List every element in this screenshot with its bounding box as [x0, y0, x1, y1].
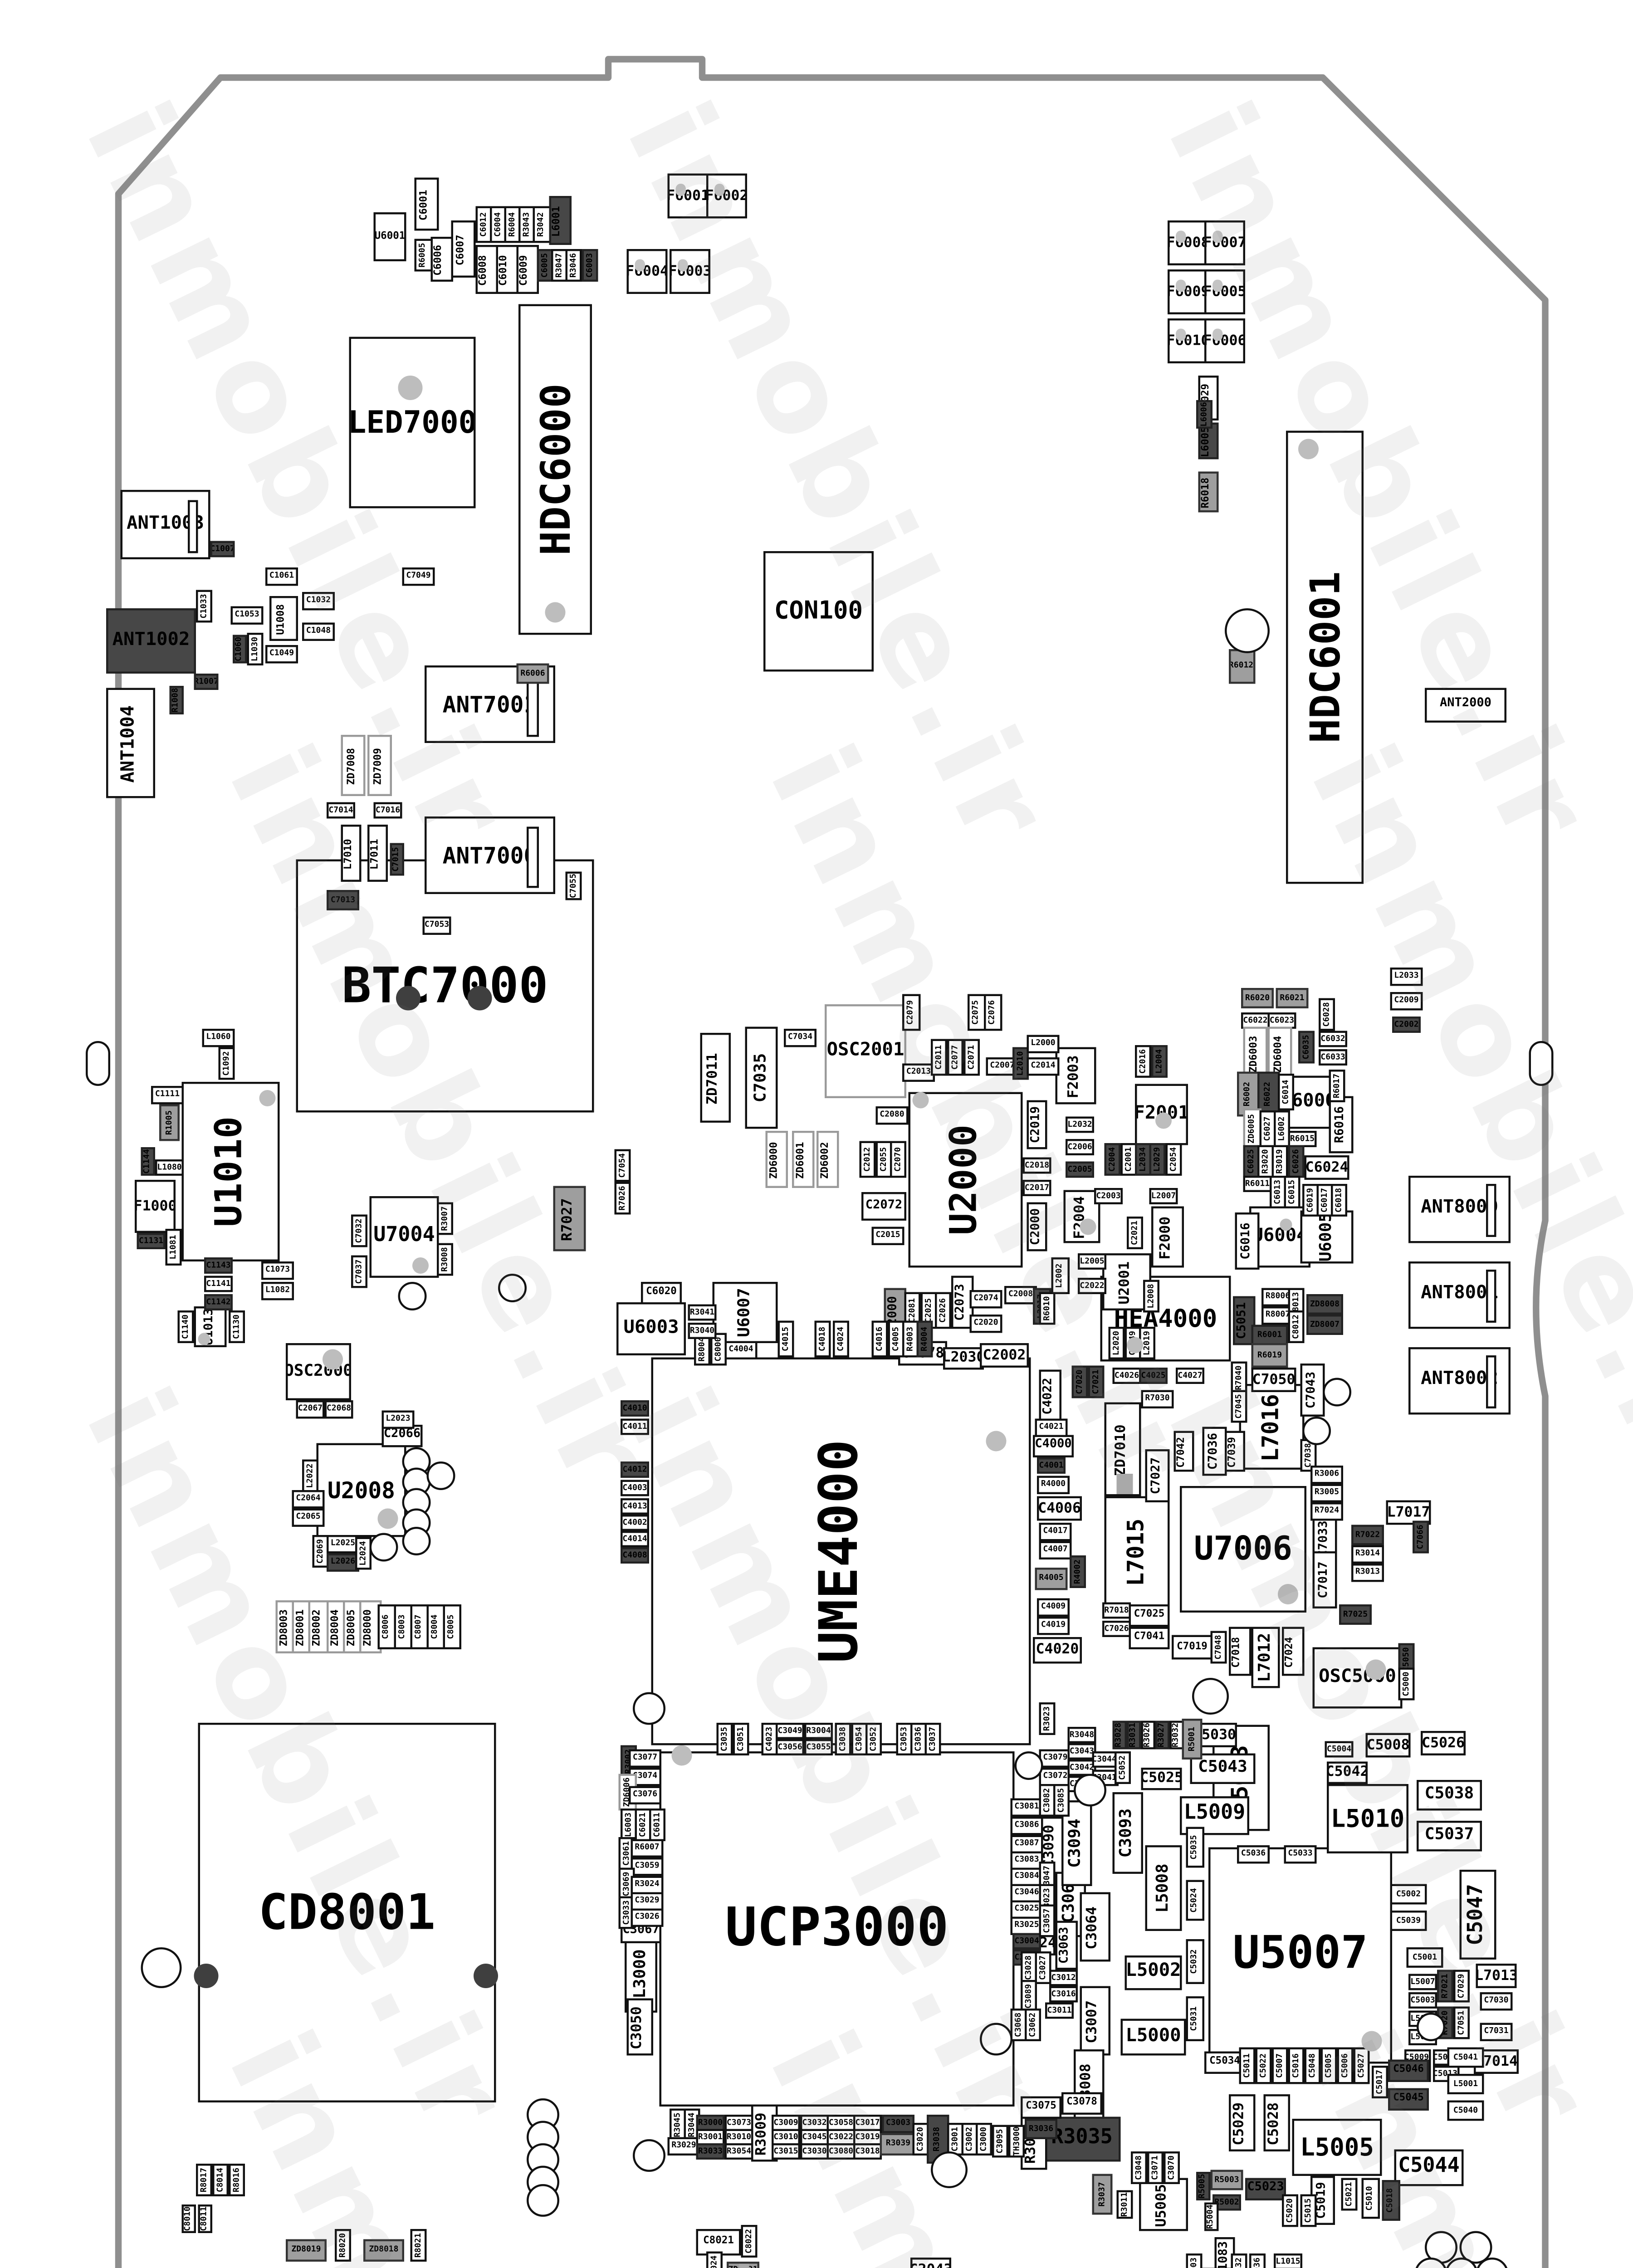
component-label: C2070 [894, 1147, 902, 1172]
component-label: C3016 [1051, 1990, 1076, 1999]
component-C1111: C1111 [151, 1085, 184, 1104]
solder-pad [1117, 1474, 1133, 1494]
component-label: UME4000 [814, 1439, 867, 1663]
component-C2068: C2068 [325, 1399, 353, 1418]
component-U6005: U6005 [1301, 1211, 1354, 1264]
component-label: C7050 [1252, 1373, 1296, 1387]
component-label: C2043 [910, 2263, 951, 2268]
component-C6001: C6001 [415, 178, 439, 231]
component-label: C3015 [773, 2147, 798, 2156]
component-C5038: C5038 [1417, 1779, 1482, 1810]
component-label: C5027 [1358, 2053, 1366, 2078]
component-label: R3024 [635, 1880, 659, 1888]
component-label: R7018 [1104, 1607, 1129, 1615]
component-label: C2071 [968, 1045, 976, 1070]
component-label: C1060 [235, 637, 243, 661]
component-C2012: C2012 [860, 1141, 876, 1178]
component-R3025: R3025 [1011, 1916, 1043, 1934]
component-label: C7017 [1319, 1561, 1331, 1598]
component-C3068: C3068 [1011, 2009, 1027, 2041]
component-label: R3043 [523, 212, 531, 237]
component-C4001: C4001 [1037, 1457, 1066, 1474]
component-label: C3012 [1051, 1974, 1076, 1982]
component-label: R6005 [419, 243, 427, 267]
component-C3007: C3007 [1079, 1986, 1110, 2056]
component-L2025: L2025 [327, 1534, 359, 1553]
component-U1010: U1010 [182, 1082, 280, 1261]
component-C5032: C5032 [1185, 1939, 1203, 1984]
component-R7040: R7040 [1231, 1362, 1247, 1394]
component-L2032: L2032 [1066, 1117, 1094, 1133]
component-C2016: C2016 [1135, 1045, 1151, 1078]
component-R3046: R3046 [566, 249, 582, 282]
component-label: R3047 [555, 253, 563, 278]
mounting-hole [527, 2184, 559, 2217]
component-label: C7054 [619, 1153, 627, 1178]
component-label: L1080 [157, 1163, 181, 1172]
component-L2026: L2026 [327, 1552, 359, 1571]
component-label: ZD6002 [821, 1141, 832, 1178]
component-label: C7039 [1230, 1436, 1240, 1467]
component-label: R6006 [520, 670, 545, 678]
component-C7048: C7048 [1211, 1631, 1227, 1664]
component-label: R1008 [171, 688, 180, 712]
component-C5004: C5004 [1325, 1741, 1354, 1758]
component-label: ZD8004 [332, 1608, 342, 1645]
component-C1033: C1033 [196, 590, 212, 623]
component-R3028: R3028 [1111, 1721, 1126, 1750]
component-label: F6005 [1204, 285, 1245, 299]
component-label: C7030 [1484, 1996, 1508, 2004]
component-label: C5051 [1237, 1302, 1249, 1339]
component-label: L1015 [1276, 2258, 1300, 2266]
component-label: C5028 [1269, 2102, 1283, 2145]
component-R6001: R6001 [1252, 1325, 1288, 1345]
component-label: C2079 [906, 1000, 914, 1025]
component-R3026: R3026 [1140, 1721, 1154, 1750]
component-R3023: R3023 [1039, 1702, 1056, 1735]
component-C4015: C4015 [778, 1321, 794, 1358]
component-C8011: C8011 [197, 2204, 211, 2233]
component-label: C2016 [1139, 1049, 1147, 1074]
component-label: C5039 [1396, 1917, 1421, 1925]
component-C3018: C3018 [853, 2143, 882, 2160]
component-label: R3000 [698, 2119, 723, 2127]
component-ANT8002: ANT8002 [1408, 1346, 1511, 1414]
component-R6018: R6018 [1198, 472, 1219, 513]
component-F2000: F2000 [1151, 1207, 1184, 1268]
component-label: L1030 [251, 637, 259, 661]
component-label: C3033 [623, 1900, 631, 1925]
component-OSC5000: OSC5000 [1313, 1647, 1403, 1709]
component-label: L2000 [1031, 1039, 1055, 1047]
component-label: C3095 [996, 2129, 1004, 2153]
component-label: R3025 [1014, 1921, 1039, 1929]
component-C1060: C1060 [232, 635, 246, 664]
component-label: C7043 [1306, 1372, 1319, 1408]
mounting-hole [1192, 1678, 1229, 1715]
component-C7045: C7045 [1231, 1390, 1247, 1423]
component-C5052: C5052 [1115, 1751, 1131, 1784]
antenna-slot [189, 500, 198, 553]
component-label: C4011 [622, 1423, 647, 1431]
component-label: C5035 [1190, 1835, 1198, 1859]
component-label: F6001 [668, 189, 709, 203]
component-label: C2000 [1031, 1208, 1043, 1245]
component-label: ZD8007 [1310, 1321, 1340, 1329]
component-label: C5038 [1425, 1786, 1474, 1803]
component-C4004: C4004 [725, 1340, 758, 1359]
component-label: ZD8002 [313, 1608, 324, 1645]
component-R3037: R3037 [1092, 2174, 1113, 2215]
component-C7034: C7034 [784, 1028, 816, 1046]
component-R3042: R3042 [532, 206, 550, 243]
component-label: F6004 [627, 264, 668, 279]
component-C7031: C7031 [1480, 2022, 1513, 2040]
component-label: C2007 [990, 1061, 1014, 1070]
component-C6014: C6014 [1278, 1074, 1294, 1110]
component-C3064: C3064 [1079, 1892, 1110, 1962]
component-label: C6022 [1243, 1017, 1267, 1025]
component-label: TH3000 [1012, 2126, 1021, 2156]
pin1-dot [545, 602, 566, 623]
component-label: R6001 [1257, 1331, 1282, 1339]
component-C7024: C7024 [1281, 1627, 1304, 1676]
component-label: R3054 [727, 2147, 751, 2156]
component-label: U6004 [1252, 1228, 1308, 1246]
component-label: R6002 [1243, 1082, 1252, 1106]
component-C3000: C3000 [976, 2123, 992, 2156]
component-label: L5005 [1300, 2135, 1374, 2160]
component-C3059: C3059 [631, 1857, 664, 1875]
component-label: ZD8008 [1310, 1300, 1340, 1309]
component-label: C6003 [586, 253, 594, 278]
component-C5003: C5003 [1408, 1992, 1437, 2009]
component-R6019: R6019 [1252, 1343, 1288, 1368]
component-label: R3032 [1172, 1723, 1180, 1747]
component-label: C3089 [1025, 1984, 1033, 2009]
component-label: L2023 [386, 1415, 410, 1423]
component-LED7000: LED7000 [349, 337, 476, 508]
component-label: C1003 [1190, 2258, 1198, 2268]
mounting-hole [1015, 1751, 1043, 1780]
component-label: C7031 [1484, 2027, 1508, 2035]
component-label: L5009 [1184, 1804, 1245, 1825]
component-label: C8003 [398, 1614, 406, 1639]
component-label: C3070 [1168, 2156, 1176, 2180]
component-C7037: C7037 [351, 1256, 367, 1288]
component-label: C6035 [1302, 1035, 1310, 1059]
component-label: C6016 [1241, 1222, 1253, 1259]
component-label: C3020 [917, 2127, 925, 2151]
component-C4014: C4014 [621, 1531, 649, 1547]
component-label: C3063 [1060, 1927, 1072, 1964]
component-label: C1007 [210, 545, 235, 553]
component-label: R4002 [1074, 1559, 1082, 1584]
component-C3056: C3056 [776, 1739, 804, 1755]
component-C8006: C8006 [376, 1604, 395, 1649]
component-label: C7035 [753, 1053, 770, 1102]
component-C2018: C2018 [1023, 1158, 1051, 1174]
pin1-dot [1127, 1337, 1143, 1354]
component-ANT7000: ANT7000 [425, 816, 555, 894]
component-label: R3010 [727, 2133, 751, 2141]
component-label: C3025 [1014, 1905, 1039, 1913]
component-label: U1008 [279, 603, 289, 634]
component-C1048: C1048 [302, 621, 335, 640]
component-C6015: C6015 [1284, 1176, 1301, 1208]
component-C2054: C2054 [1166, 1143, 1182, 1176]
component-C3089: C3089 [1021, 1980, 1037, 2013]
component-C2003: C2003 [1094, 1188, 1123, 1204]
component-label: C5020 [1286, 2198, 1294, 2223]
component-ZD7011: ZD7011 [699, 1033, 730, 1123]
component-C2006: C2006 [1066, 1139, 1094, 1155]
component-label: C4000 [1035, 1439, 1071, 1452]
component-label: R3019 [1276, 1149, 1284, 1173]
component-F6003: F6003 [670, 249, 710, 294]
component-label: C3056 [777, 1743, 802, 1751]
component-C7027: C7027 [1145, 1449, 1170, 1502]
component-C3075: C3075 [1021, 2095, 1061, 2118]
component-label: C7025 [1134, 1609, 1165, 1620]
component-label: C2012 [864, 1147, 872, 1172]
component-R5005: R5005 [1195, 2172, 1210, 2200]
component-label: C3003 [886, 2119, 910, 2127]
component-label: ZD7010 [1115, 1423, 1130, 1475]
component-label: C7021 [1092, 1369, 1100, 1394]
component-R6021: R6021 [1276, 988, 1309, 1008]
component-C5020: C5020 [1282, 2195, 1298, 2227]
component-label: C5031 [1190, 2006, 1198, 2031]
component-label: C6004 [494, 212, 502, 237]
component-C8010: C8010 [181, 2204, 195, 2233]
component-label: ANT1004 [122, 704, 140, 782]
component-label: C6012 [480, 212, 488, 237]
component-C3015: C3015 [772, 2143, 800, 2160]
component-CON100: CON100 [763, 550, 874, 671]
component-label: C3078 [1066, 2097, 1097, 2108]
component-label: C1142 [206, 1298, 230, 1306]
component-label: F6010 [1168, 334, 1208, 348]
component-label: L1060 [206, 1033, 230, 1041]
component-label: L2002 [1056, 1263, 1064, 1288]
component-C4021: C4021 [1035, 1417, 1068, 1436]
component-C5023: C5023 [1245, 2177, 1286, 2200]
component-C2026: C2026 [935, 1292, 951, 1329]
component-C4009: C4009 [1037, 1597, 1070, 1616]
component-C2000: C2000 [1027, 1202, 1047, 1251]
component-C2014: C2014 [1027, 1056, 1060, 1075]
mounting-hole [1074, 1774, 1106, 1807]
component-R7025: R7025 [1339, 1604, 1372, 1625]
component-L5007: L5007 [1408, 1974, 1437, 1990]
component-label: L7017 [1387, 1505, 1430, 1520]
component-C3071: C3071 [1147, 2151, 1164, 2184]
component-label: C6006 [436, 244, 446, 275]
mounting-hole [427, 1461, 455, 1490]
component-label: C4004 [728, 1345, 753, 1354]
component-label: C6032 [1320, 1035, 1345, 1043]
component-L7013: L7013 [1476, 1964, 1517, 1988]
component-C4022: C4022 [1038, 1370, 1061, 1423]
antenna-slot [526, 676, 538, 736]
component-C5028: C5028 [1262, 2094, 1289, 2151]
component-label: C4001 [1039, 1461, 1063, 1470]
component-label: C8004 [431, 1614, 439, 1639]
component-label: C2011 [935, 1045, 943, 1070]
component-label: C3071 [1151, 2156, 1159, 2180]
component-label: C7020 [1076, 1369, 1084, 1394]
component-label: C3007 [1087, 1999, 1101, 2043]
component-label: C2076 [988, 1000, 996, 1025]
component-C5042: C5042 [1327, 1760, 1368, 1783]
component-label: C6009 [522, 254, 532, 285]
component-label: C5041 [1453, 2053, 1478, 2062]
component-label: LED7000 [349, 407, 476, 438]
component-ZD7009: ZD7009 [367, 735, 392, 796]
component-label: C7019 [1177, 1642, 1208, 1652]
component-label: C6019 [1306, 1188, 1315, 1212]
pin1-dot [1080, 1219, 1096, 1235]
mounting-hole [498, 1274, 527, 1302]
component-label: C1049 [269, 649, 294, 657]
component-label: L6002 [1278, 1116, 1286, 1141]
component-label: C5029 [1234, 2102, 1248, 2145]
component-C5021: C5021 [1341, 2178, 1358, 2211]
component-C2011: C2011 [931, 1039, 947, 1076]
component-label: L6005 [1203, 425, 1214, 456]
component-R6012: R6012 [1228, 648, 1255, 683]
component-label: C3032 [802, 2119, 826, 2127]
component-C1144: C1144 [140, 1147, 154, 1176]
component-label: R6018 [1203, 477, 1214, 508]
component-C7049: C7049 [402, 567, 435, 585]
component-L1060: L1060 [202, 1028, 235, 1046]
component-label: C3019 [855, 2133, 880, 2141]
component-L5001: L5001 [1447, 2074, 1484, 2094]
component-L7012: L7012 [1252, 1627, 1280, 1688]
component-R5004: R5004 [1203, 2203, 1218, 2231]
component-label: C2008 [1008, 1290, 1033, 1298]
component-C2004: C2004 [1105, 1143, 1121, 1176]
component-label: R3027 [1158, 1723, 1166, 1747]
component-C4012: C4012 [621, 1461, 649, 1478]
component-C3025: C3025 [1011, 1899, 1043, 1918]
component-C8007: C8007 [409, 1604, 428, 1649]
component-label: C7049 [406, 572, 430, 580]
component-C2019: C2019 [1027, 1100, 1047, 1149]
component-C1053: C1053 [231, 605, 264, 624]
component-label: C3035 [721, 1727, 729, 1751]
component-R7026: R7026 [615, 1182, 631, 1215]
component-label: R3008 [441, 1247, 449, 1271]
component-ZD7008: ZD7008 [341, 735, 366, 796]
component-U6001: U6001 [374, 212, 406, 261]
component-label: R5003 [1214, 2176, 1239, 2184]
component-C1073: C1073 [261, 1261, 294, 1279]
component-label: C3001 [951, 2127, 959, 2151]
component-R4004: R4004 [917, 1321, 933, 1358]
component-label: C4012 [622, 1466, 647, 1474]
component-L2002: L2002 [1050, 1257, 1069, 1294]
component-label: C3068 [1015, 2013, 1023, 2037]
component-label: C3087 [1014, 1839, 1039, 1848]
component-R3019: R3019 [1272, 1145, 1288, 1178]
component-label: R3007 [441, 1206, 449, 1231]
component-C6007: C6007 [451, 220, 476, 278]
component-R3040: R3040 [688, 1323, 717, 1339]
component-C4008: C4008 [621, 1547, 649, 1564]
component-C5007: C5007 [1272, 2048, 1288, 2084]
component-C6010: C6010 [495, 245, 518, 294]
component-label: C5046 [1393, 2065, 1424, 2075]
component-label: C7013 [331, 896, 355, 904]
component-C7017: C7017 [1313, 1551, 1337, 1608]
component-C3079: C3079 [1039, 1748, 1072, 1767]
antenna-slot [1487, 1270, 1497, 1322]
component-label: R6022 [1264, 1082, 1272, 1106]
component-C4019: C4019 [1037, 1616, 1070, 1634]
component-label: R3039 [886, 2139, 910, 2147]
component-label: C3082 [1043, 1788, 1051, 1813]
component-C3087: C3087 [1011, 1834, 1043, 1853]
component-label: C6021 [639, 1813, 647, 1837]
component-label: C3043 [1070, 1747, 1094, 1755]
component-R8017: R8017 [196, 2164, 212, 2196]
component-C7026: C7026 [1102, 1621, 1131, 1637]
component-C1132: C1132 [1231, 2253, 1247, 2268]
component-C6009: C6009 [515, 245, 538, 294]
component-ZD8008: ZD8008 [1306, 1294, 1343, 1315]
component-L2005: L2005 [1078, 1253, 1106, 1270]
component-label: C7032 [355, 1218, 363, 1243]
component-label: R8004 [698, 1337, 706, 1361]
component-label: C2069 [317, 1539, 325, 1564]
component-label: C1053 [235, 611, 259, 619]
component-label: ANT2000 [1440, 698, 1491, 710]
component-label: R7026 [619, 1186, 627, 1210]
component-label: ZD6001 [797, 1141, 807, 1178]
component-UME4000: UME4000 [651, 1358, 1031, 1745]
component-label: C4008 [622, 1551, 647, 1559]
component-label: C8012 [1292, 1315, 1301, 1339]
component-C1032: C1032 [302, 591, 335, 610]
component-label: C6007 [458, 234, 469, 264]
component-label: U2008 [328, 1479, 395, 1501]
component-label: R3041 [690, 1309, 714, 1317]
component-L2008: L2008 [1143, 1280, 1159, 1313]
component-C3048: C3048 [1131, 2151, 1147, 2184]
component-ZD6000: ZD6000 [764, 1131, 787, 1188]
component-label: R3005 [1315, 1488, 1339, 1496]
component-C5036: C5036 [1237, 1844, 1270, 1863]
component-R3031: R3031 [1126, 1721, 1140, 1750]
component-label: C2014 [1031, 1061, 1055, 1070]
component-C4013: C4013 [621, 1498, 649, 1515]
component-C7053: C7053 [423, 915, 451, 934]
component-label: C1032 [306, 596, 331, 604]
component-label: C2015 [875, 1231, 900, 1239]
pcb-diagram: HDC6000HDC6001LED7000CON100BTC7000U1010U… [0, 0, 1633, 2268]
component-label: ZD7009 [375, 747, 385, 784]
component-R3008: R3008 [437, 1243, 453, 1276]
component-C2080: C2080 [876, 1105, 909, 1124]
component-R1007: R1007 [194, 674, 219, 690]
component-C5044: C5044 [1394, 2150, 1464, 2186]
component-label: R7021 [1441, 1974, 1449, 1998]
component-C3038: C3038 [835, 1723, 851, 1755]
